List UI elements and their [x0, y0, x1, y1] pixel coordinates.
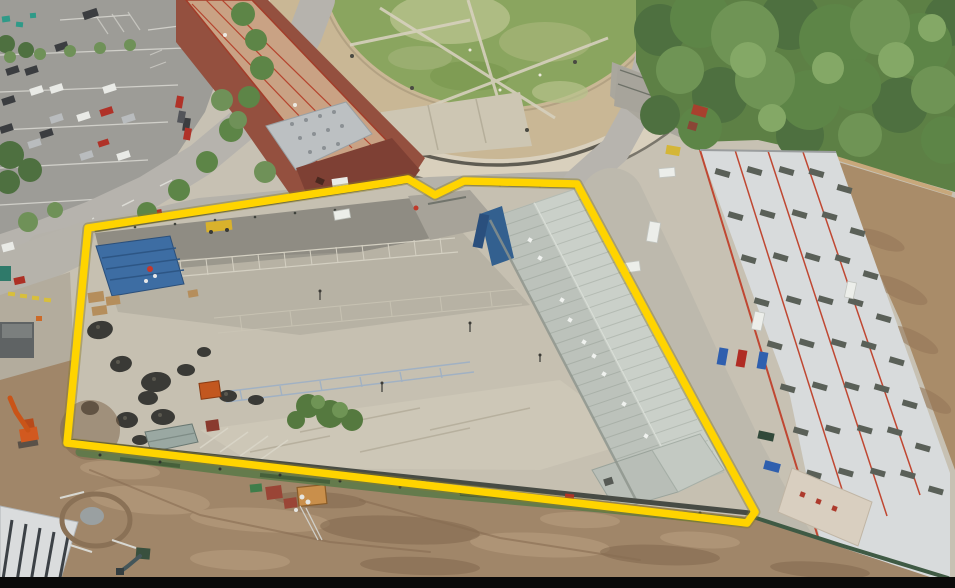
orange-dumpster: [199, 381, 221, 400]
letterbox-bar: [0, 577, 955, 588]
aerial-scene: [0, 0, 955, 588]
scene-shape: [80, 507, 104, 525]
scene-shape: [205, 419, 219, 432]
scene-shape: [2, 324, 32, 338]
scene-shape: [116, 568, 124, 575]
scene-shape: [147, 266, 153, 272]
scene-shape: [499, 22, 591, 62]
scene-shape: [532, 81, 588, 103]
teal-container: [0, 266, 11, 281]
scene-shape: [388, 46, 452, 70]
scene-shape: [250, 483, 263, 492]
scene-shape: [36, 316, 42, 321]
aerial-photograph: [0, 0, 955, 588]
scene-shape: [414, 206, 419, 211]
